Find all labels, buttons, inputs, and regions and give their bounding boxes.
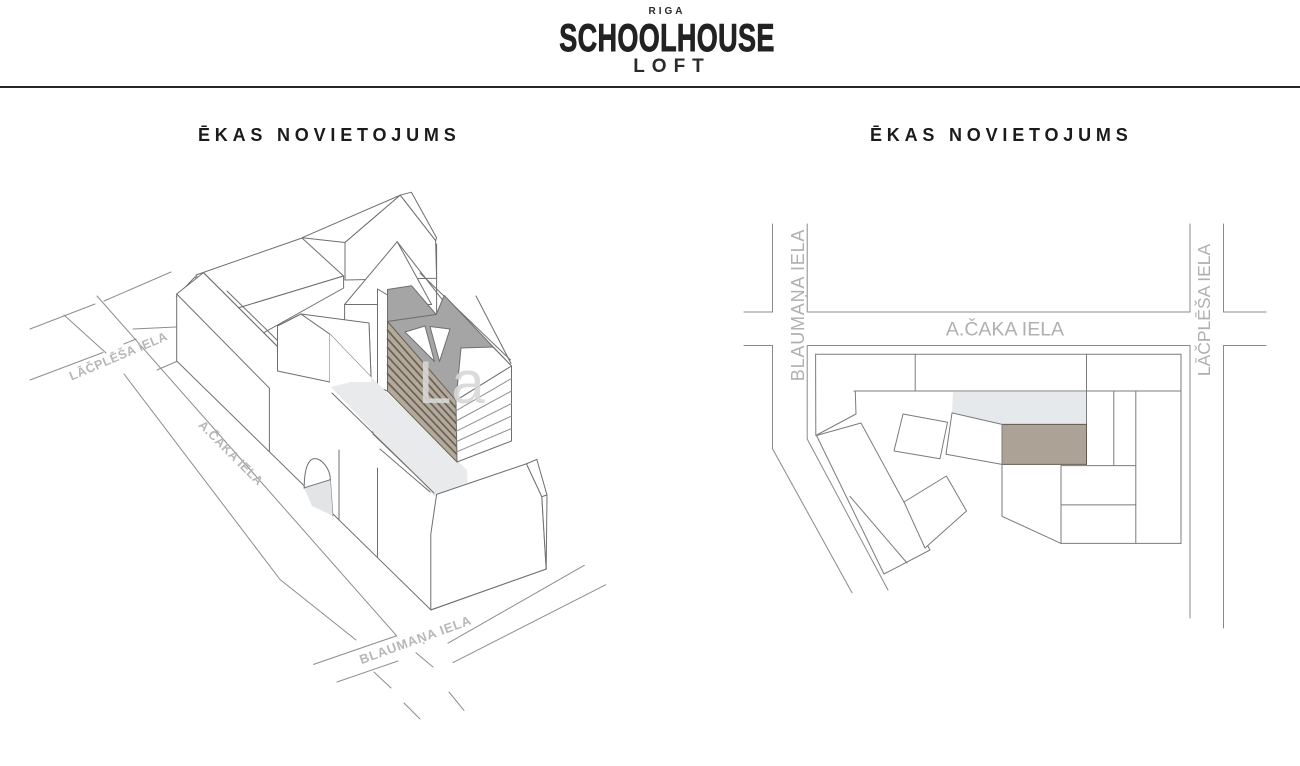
svg-text:LĀČPLĒŠA IELA: LĀČPLĒŠA IELA	[1193, 244, 1214, 377]
svg-text:LĀČPLĒŠA IELA: LĀČPLĒŠA IELA	[67, 328, 170, 383]
svg-text:BLAUMAŅA IELA: BLAUMAŅA IELA	[357, 613, 473, 668]
svg-text:La: La	[418, 349, 485, 416]
svg-text:BLAUMAŅA IELA: BLAUMAŅA IELA	[788, 229, 808, 381]
svg-text:A.ČAKA IELA: A.ČAKA IELA	[946, 318, 1064, 341]
